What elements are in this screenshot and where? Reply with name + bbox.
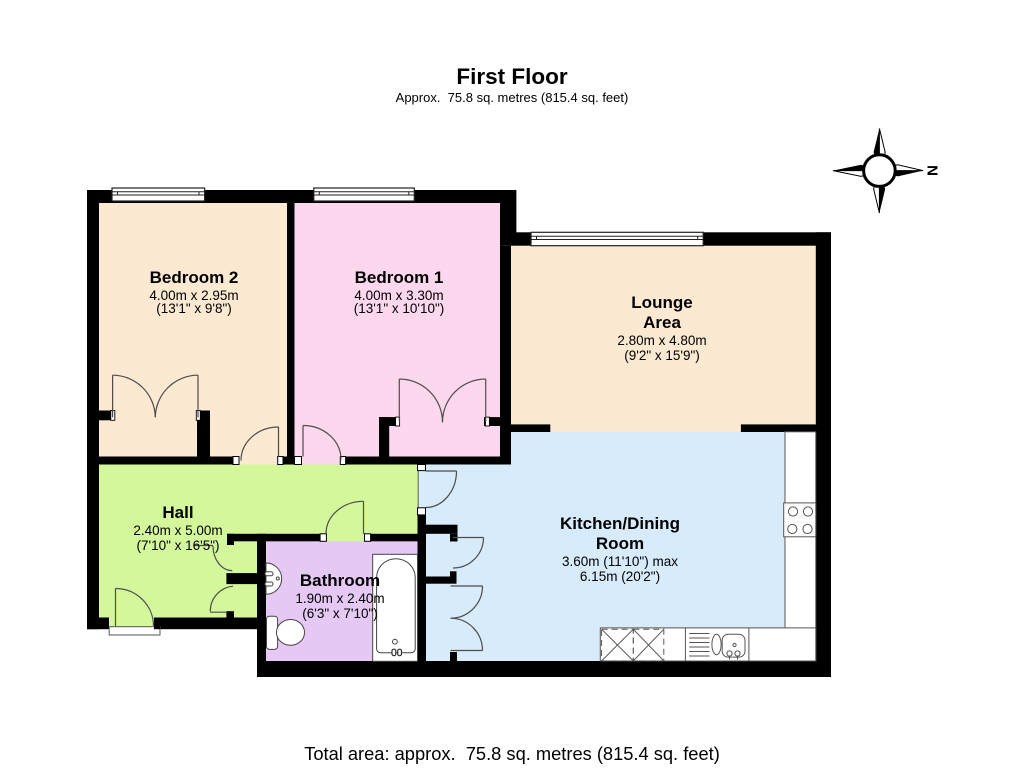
svg-text:Total area: approx. 75.8 sq.: Total area: approx. 75.8 sq. metres (815… (304, 743, 720, 764)
svg-text:Approx. 75.8 sq. metres (815.: Approx. 75.8 sq. metres (815.4 sq. feet) (396, 90, 629, 105)
svg-text:(6'3" x 7'10"): (6'3" x 7'10") (302, 606, 378, 621)
svg-text:N: N (924, 165, 941, 176)
svg-text:Bedroom 2: Bedroom 2 (150, 268, 239, 287)
svg-text:Bedroom 1: Bedroom 1 (355, 268, 444, 287)
svg-text:(13'1" x 9'8"): (13'1" x 9'8") (156, 301, 232, 316)
svg-text:Lounge: Lounge (631, 293, 692, 312)
svg-text:2.80m x 4.80m: 2.80m x 4.80m (617, 333, 706, 348)
svg-text:Area: Area (643, 313, 681, 332)
svg-text:6.15m (20'2"): 6.15m (20'2") (580, 569, 660, 584)
svg-text:3.60m (11'10") max: 3.60m (11'10") max (562, 554, 678, 569)
svg-text:Kitchen/Dining: Kitchen/Dining (560, 514, 680, 533)
svg-text:(13'1" x 10'10"): (13'1" x 10'10") (354, 301, 445, 316)
svg-text:Room: Room (596, 534, 644, 553)
svg-text:Hall: Hall (162, 503, 193, 522)
svg-text:(7'10" x 16'5"): (7'10" x 16'5") (136, 538, 219, 553)
svg-text:2.40m x 5.00m: 2.40m x 5.00m (133, 523, 222, 538)
svg-text:(9'2" x 15'9"): (9'2" x 15'9") (624, 348, 700, 363)
svg-text:First Floor: First Floor (456, 64, 567, 89)
svg-text:Bathroom: Bathroom (300, 571, 380, 590)
svg-text:1.90m x 2.40m: 1.90m x 2.40m (295, 591, 384, 606)
